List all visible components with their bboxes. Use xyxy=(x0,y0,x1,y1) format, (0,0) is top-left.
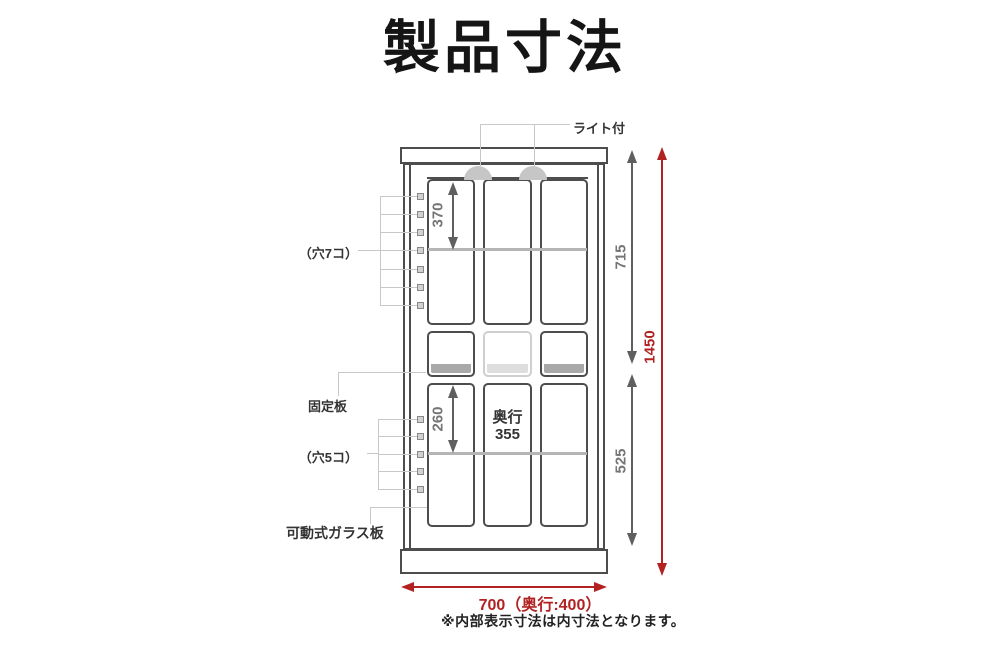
fixed-board-leader-vertical xyxy=(338,372,339,396)
shelf-pin-hole xyxy=(417,416,424,423)
dim-370-text: 370 xyxy=(430,202,447,227)
light-leader-drop-left xyxy=(480,124,481,166)
fixed-board-leader-horizontal xyxy=(338,372,426,373)
holes7-bracket-line xyxy=(380,196,381,306)
shelf-pin-hole xyxy=(417,468,424,475)
lower-door-panel-center: 奥行 355 xyxy=(483,383,531,527)
cabinet-crown xyxy=(400,147,608,164)
dim-260-text: 260 xyxy=(430,406,447,431)
arrow-shaft xyxy=(661,150,663,573)
shelf-pin-hole xyxy=(417,284,424,291)
inner-depth-label: 奥行 355 xyxy=(485,409,529,444)
dim-525-text: 525 xyxy=(613,448,630,473)
holes7-bracket-stub xyxy=(380,269,417,270)
arrow-shaft xyxy=(404,586,604,588)
shelf-pin-hole xyxy=(417,247,424,254)
holes7-bracket-stub xyxy=(380,287,417,288)
body-inner-line-right xyxy=(597,165,599,548)
inner-depth-text: 奥行 xyxy=(485,409,529,426)
shelf-pin-hole xyxy=(417,229,424,236)
dim-1450-arrow xyxy=(657,147,667,576)
lower-door-panel-right xyxy=(540,383,588,527)
note-text: ※内部表示寸法は内寸法となります。 xyxy=(441,611,685,631)
fixed-shelf-bar-left xyxy=(431,364,471,373)
holes7-bracket-stub xyxy=(380,232,417,233)
holes5-bracket-stub xyxy=(378,454,417,455)
dim-700-arrow xyxy=(401,582,607,592)
shelf-pin-hole xyxy=(417,486,424,493)
light-label: ライト付 xyxy=(573,118,625,137)
arrow-head-down xyxy=(627,533,637,546)
inner-depth-value: 355 xyxy=(485,426,529,443)
cabinet-diagram: 奥行 355 ライト付 （穴7コ） 固定板 （穴5コ） 可動式ガラス板 xyxy=(0,0,1000,666)
arrow-head-down xyxy=(657,563,667,576)
shelf-pin-hole xyxy=(417,266,424,273)
movable-glass-leader-stub xyxy=(370,507,371,524)
middle-cell-center xyxy=(483,331,531,377)
holes7-bracket-stub xyxy=(380,250,417,251)
light-leader-drop-right xyxy=(534,124,535,166)
holes5-bracket-stub xyxy=(378,436,417,437)
arrow-head-down xyxy=(448,440,458,453)
dim-1450-text: 1450 xyxy=(642,330,659,363)
light-leader-horizontal xyxy=(480,124,570,125)
cabinet-base xyxy=(400,549,608,574)
dim-370-arrow xyxy=(448,182,458,250)
holes7-bracket-stub xyxy=(380,196,417,197)
movable-glass-label: 可動式ガラス板 xyxy=(286,523,384,543)
holes7-label: （穴7コ） xyxy=(296,243,358,262)
dim-715-text: 715 xyxy=(613,244,630,269)
holes5-label-line xyxy=(367,453,378,454)
holes7-bracket-stub xyxy=(380,305,417,306)
body-inner-line-left xyxy=(409,165,411,548)
arrow-shaft xyxy=(631,377,633,543)
fixed-shelf-bar-center xyxy=(487,364,527,373)
holes7-bracket-stub xyxy=(380,214,417,215)
arrow-head-right xyxy=(594,582,607,592)
shelf-pin-hole xyxy=(417,193,424,200)
holes5-bracket-stub xyxy=(378,419,417,420)
fixed-shelf-bar-right xyxy=(544,364,584,373)
upper-door-panel-right xyxy=(540,179,588,325)
arrow-head-down xyxy=(627,351,637,364)
holes5-label: （穴5コ） xyxy=(296,447,358,466)
dim-260-arrow xyxy=(448,385,458,453)
fixed-board-label: 固定板 xyxy=(308,396,347,415)
arrow-head-down xyxy=(448,237,458,250)
shelf-pin-hole xyxy=(417,433,424,440)
holes5-bracket-stub xyxy=(378,471,417,472)
shelf-pin-hole xyxy=(417,302,424,309)
shelf-pin-hole xyxy=(417,451,424,458)
middle-cell-right xyxy=(540,331,588,377)
middle-compartment-grid xyxy=(427,331,588,377)
holes5-bracket-stub xyxy=(378,489,417,490)
product-dimension-diagram: 製品寸法 奥行 355 xyxy=(0,0,1000,666)
upper-door-panel-center xyxy=(483,179,531,325)
arrow-shaft xyxy=(631,153,633,361)
shelf-pin-hole xyxy=(417,211,424,218)
holes7-label-line xyxy=(358,250,380,251)
middle-cell-left xyxy=(427,331,475,377)
